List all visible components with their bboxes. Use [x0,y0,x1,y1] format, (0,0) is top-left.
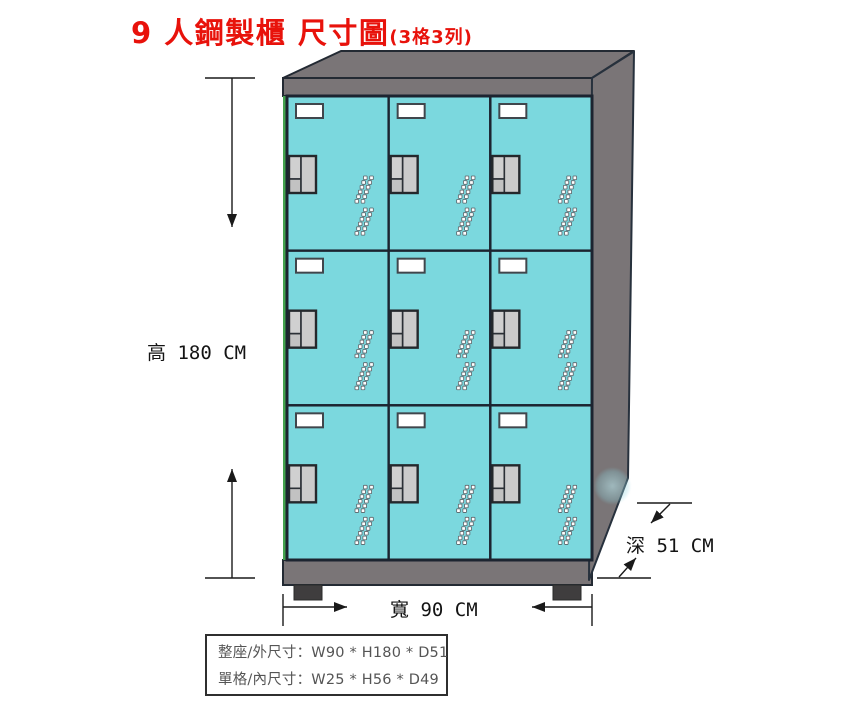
vent-hole [468,372,472,376]
vent-hole [360,185,364,189]
vent-hole [361,232,365,236]
vent-hole [562,531,566,535]
vent-hole [457,386,461,390]
vent-hole [471,176,475,180]
vent-hole [568,222,572,226]
vent-hole [568,531,572,535]
vent-hole [573,485,577,489]
vent-hole [558,354,562,358]
vent-hole [360,340,364,344]
vent-hole [358,531,362,535]
vent-hole [368,335,372,339]
vent-hole [355,541,359,545]
vent-hole [368,367,372,371]
vent-hole [364,485,368,489]
vent-hole [457,354,461,358]
vent-hole [360,372,364,376]
vent-hole [566,536,570,540]
vent-hole [568,345,572,349]
vent-hole [365,190,369,194]
vent-hole [363,504,367,508]
vent-hole [558,386,562,390]
vent-hole [468,340,472,344]
vent-hole [465,504,469,508]
handle-part [289,311,301,334]
handle-part [492,156,504,179]
vent-hole [471,485,475,489]
vent-hole [366,495,370,499]
vent-hole [566,381,570,385]
dimension-diagram: 9 人鋼製櫃 尺寸圖(3格3列) [0,0,856,720]
name-card-holder [296,413,323,427]
vent-hole [465,208,469,212]
locker-door [490,251,592,406]
vent-hole [357,536,361,540]
vent-hole [470,213,474,217]
vent-hole [460,531,464,535]
cabinet-base [283,560,592,585]
vent-hole [458,381,462,385]
vent-hole [458,195,462,199]
vent-hole [558,509,562,513]
vent-hole [364,517,368,521]
vent-hole [358,345,362,349]
vent-hole [465,363,469,367]
handle-part [289,334,301,348]
cabinet-top-surface [283,51,634,78]
vent-hole [571,367,575,371]
vent-hole [573,331,577,335]
vent-hole [573,208,577,212]
handle-part [492,465,504,488]
vent-hole [571,522,575,526]
vent-hole [368,522,372,526]
vent-hole [357,349,361,353]
vent-hole [355,200,359,204]
cabinet-top-front-edge [283,78,592,96]
vent-hole [560,504,564,508]
vent-hole [468,527,472,531]
depth-label: 深 51 CM [626,531,714,558]
vent-hole [570,185,574,189]
vent-hole [466,377,470,381]
vent-hole [565,490,569,494]
vent-hole [463,354,467,358]
handle-part [403,311,418,348]
vent-hole [558,200,562,204]
vent-hole [360,527,364,531]
vent-hole [358,222,362,226]
vent-hole [565,386,569,390]
vent-hole [463,367,467,371]
vent-hole [465,176,469,180]
vent-hole [463,232,467,236]
vent-hole [570,495,574,499]
vent-hole [566,504,570,508]
vent-hole [360,217,364,221]
name-card-holder [398,104,425,118]
vent-hole [463,541,467,545]
vent-hole [462,527,466,531]
vent-hole [571,213,575,217]
vent-hole [558,232,562,236]
handle-part [504,465,519,502]
handle-part [289,465,301,488]
dimension-arrow-downleft [651,504,670,523]
vent-hole [366,527,370,531]
locker-door [287,251,389,406]
vent-hole [567,208,571,212]
vent-hole [465,195,469,199]
locker-door [490,405,592,560]
vent-hole [457,509,461,513]
name-card-holder [499,413,526,427]
vent-hole [563,340,567,344]
name-card-holder [499,104,526,118]
vent-hole [563,185,567,189]
vent-hole [362,213,366,217]
vent-hole [463,490,467,494]
vent-hole [361,386,365,390]
vent-hole [565,509,569,513]
handle-part [289,179,301,193]
vent-hole [363,227,367,231]
vent-hole [364,176,368,180]
vent-hole [571,181,575,185]
vent-hole [468,185,472,189]
vent-hole [361,541,365,545]
vent-hole [566,227,570,231]
vent-hole [364,363,368,367]
vent-hole [560,536,564,540]
vent-hole [366,340,370,344]
vent-hole [368,213,372,217]
vent-hole [460,222,464,226]
vent-hole [366,372,370,376]
vent-hole [370,331,374,335]
name-card-holder [296,259,323,273]
vent-hole [563,372,567,376]
vent-hole [562,190,566,194]
vent-hole [565,181,569,185]
handle-part [492,334,504,348]
vent-hole [562,499,566,503]
vent-hole [570,527,574,531]
vent-hole [466,345,470,349]
handle-part [391,334,403,348]
vent-hole [463,522,467,526]
vent-hole [368,490,372,494]
vent-hole [565,522,569,526]
vent-hole [458,504,462,508]
vent-hole [565,541,569,545]
vent-hole [471,517,475,521]
vent-hole [470,181,474,185]
vent-hole [355,509,359,513]
vent-hole [466,190,470,194]
vent-hole [462,217,466,221]
vent-hole [568,190,572,194]
vent-hole [466,222,470,226]
name-card-holder [398,259,425,273]
vent-hole [568,377,572,381]
vent-hole [362,522,366,526]
vent-hole [565,232,569,236]
vent-hole [458,349,462,353]
vent-hole [460,377,464,381]
handle-part [301,311,316,348]
handle-part [301,156,316,193]
vent-hole [363,536,367,540]
vent-hole [357,504,361,508]
height-dimension [205,78,255,578]
vent-hole [466,499,470,503]
vent-hole [565,367,569,371]
vent-hole [357,227,361,231]
vent-hole [462,340,466,344]
vent-hole [357,195,361,199]
vent-hole [471,363,475,367]
vent-hole [566,195,570,199]
vent-hole [457,541,461,545]
vent-hole [460,190,464,194]
vent-hole [568,499,572,503]
spec-table: 整座/外尺寸：W90 * H180 * D51 單格/內尺寸：W25 * H56… [205,634,448,696]
vent-hole [361,509,365,513]
vent-hole [565,354,569,358]
vent-hole [573,517,577,521]
locker-door [490,96,592,251]
vent-hole [370,485,374,489]
vent-hole [365,345,369,349]
locker-door [287,96,389,251]
vent-hole [571,490,575,494]
vent-hole [468,217,472,221]
handle-part [391,465,403,488]
vent-hole [470,367,474,371]
vent-hole [460,499,464,503]
locker-door [389,96,491,251]
spec-row-inner-size: 單格/內尺寸：W25 * H56 * D49 [218,668,446,689]
spec-row-outer-size: 整座/外尺寸：W90 * H180 * D51 [218,641,446,662]
vent-hole [358,190,362,194]
vent-hole [355,354,359,358]
vent-hole [470,490,474,494]
vent-hole [562,377,566,381]
vent-hole [565,213,569,217]
vent-hole [470,522,474,526]
vent-hole [468,495,472,499]
vent-hole [365,499,369,503]
vent-hole [560,227,564,231]
vent-hole [571,335,575,339]
vent-hole [463,335,467,339]
handle-part [301,465,316,502]
vent-hole [570,372,574,376]
vent-hole [463,200,467,204]
vent-hole [460,345,464,349]
locker-doors-grid [287,96,592,560]
vent-hole [463,181,467,185]
height-label: 高 180 CM [147,338,246,365]
handle-part [492,311,504,334]
vent-hole [565,200,569,204]
handle-part [391,488,403,502]
vent-hole [563,217,567,221]
vent-hole [465,227,469,231]
vent-hole [363,381,367,385]
vent-hole [560,349,564,353]
watermark-stamp [594,467,631,505]
vent-hole [370,208,374,212]
vent-hole [363,349,367,353]
cabinet-body [283,51,634,600]
vent-hole [362,335,366,339]
name-card-holder [296,104,323,118]
name-card-holder [499,259,526,273]
vent-hole [365,222,369,226]
handle-part [504,156,519,193]
vent-hole [355,232,359,236]
cabinet-foot-right [553,585,581,600]
vent-hole [565,335,569,339]
handle-part [492,179,504,193]
vent-hole [573,363,577,367]
vent-hole [465,517,469,521]
vent-hole [360,495,364,499]
vent-hole [566,349,570,353]
vent-hole [370,517,374,521]
vent-hole [362,490,366,494]
handle-part [391,179,403,193]
vent-hole [358,499,362,503]
handle-part [391,156,403,179]
vent-hole [560,381,564,385]
vent-hole [362,367,366,371]
width-label: 寬 90 CM [390,595,478,622]
vent-hole [570,217,574,221]
vent-hole [458,536,462,540]
name-card-holder [398,413,425,427]
vent-hole [466,531,470,535]
handle-part [391,311,403,334]
vent-hole [368,181,372,185]
vent-hole [462,185,466,189]
vent-hole [365,377,369,381]
vent-hole [471,208,475,212]
handle-part [504,311,519,348]
vent-hole [364,208,368,212]
vent-hole [463,213,467,217]
vent-hole [563,495,567,499]
handle-part [289,156,301,179]
vent-hole [458,227,462,231]
vent-hole [364,331,368,335]
vent-hole [361,354,365,358]
vent-hole [465,331,469,335]
vent-hole [366,185,370,189]
vent-hole [358,377,362,381]
vent-hole [357,381,361,385]
locker-door [389,251,491,406]
vent-hole [567,331,571,335]
vent-hole [573,176,577,180]
dimension-arrow-upright [619,558,636,577]
vent-hole [361,200,365,204]
vent-hole [370,363,374,367]
vent-hole [562,345,566,349]
vent-hole [471,331,475,335]
vent-hole [366,217,370,221]
vent-hole [465,381,469,385]
vent-hole [463,386,467,390]
vent-hole [567,176,571,180]
vent-hole [470,335,474,339]
vent-hole [567,485,571,489]
vent-hole [465,485,469,489]
vent-hole [355,386,359,390]
vent-hole [560,195,564,199]
handle-part [403,465,418,502]
vent-hole [567,517,571,521]
vent-hole [570,340,574,344]
vent-hole [363,195,367,199]
vent-hole [457,200,461,204]
vent-hole [562,222,566,226]
vent-hole [567,363,571,367]
vent-hole [462,495,466,499]
vent-hole [457,232,461,236]
handle-part [289,488,301,502]
vent-hole [563,527,567,531]
vent-hole [462,372,466,376]
vent-hole [362,181,366,185]
handle-part [403,156,418,193]
vent-hole [558,541,562,545]
vent-hole [465,349,469,353]
vent-hole [365,531,369,535]
vent-hole [465,536,469,540]
handle-part [492,488,504,502]
locker-door [389,405,491,560]
locker-door [287,405,389,560]
vent-hole [370,176,374,180]
cabinet-foot-left [294,585,322,600]
vent-hole [463,509,467,513]
